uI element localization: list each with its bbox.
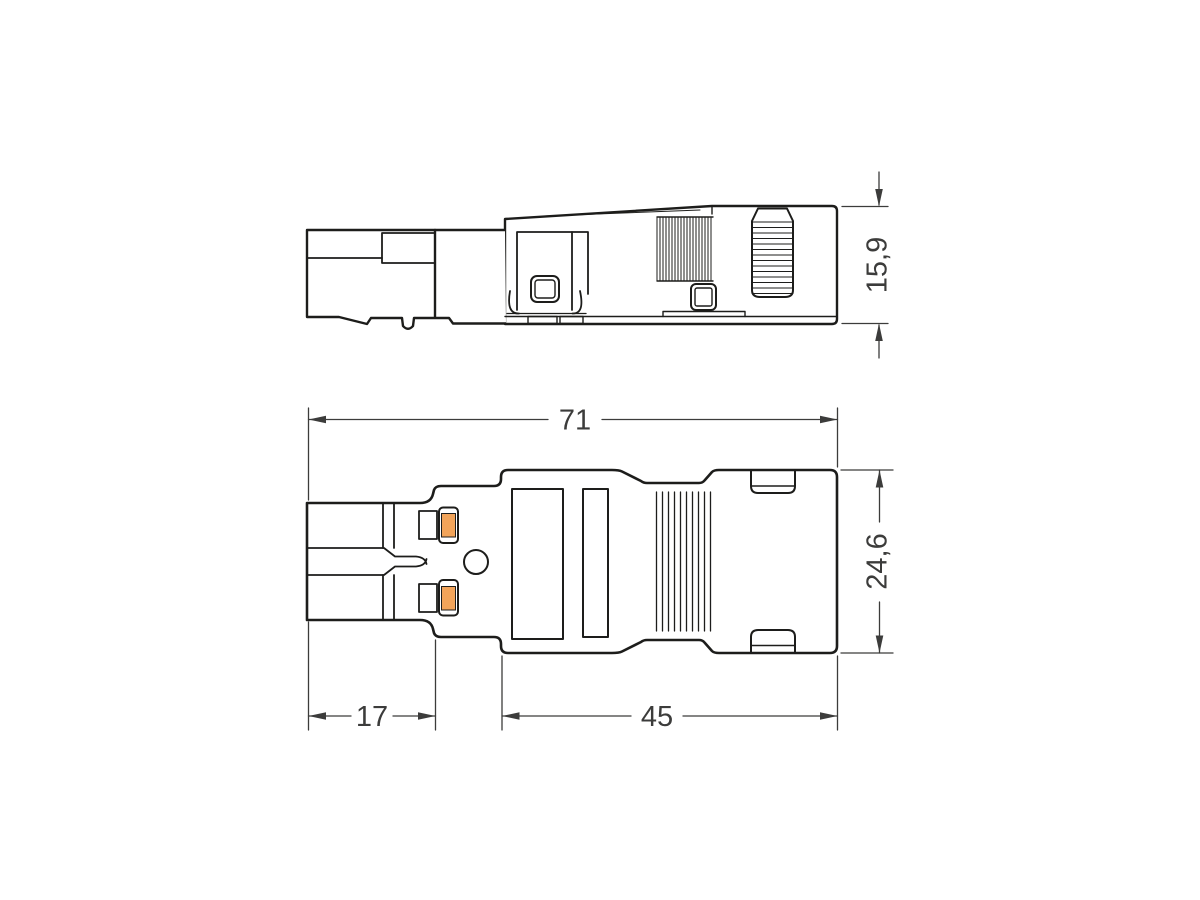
side-view-part bbox=[307, 206, 837, 329]
release-lever-2 bbox=[439, 580, 458, 616]
dim-height-label: 15,9 bbox=[862, 237, 894, 293]
technical-drawing: 15,9 bbox=[0, 0, 1200, 900]
plan-outline bbox=[307, 470, 837, 653]
dim-height: 15,9 bbox=[842, 172, 894, 358]
plan-view: 71 24,6 17 45 bbox=[307, 405, 894, 734]
dim-body-length-label: 45 bbox=[641, 701, 673, 733]
dim-overall-length-label: 71 bbox=[559, 405, 591, 437]
plan-view-part bbox=[307, 470, 837, 653]
housing-body-outline bbox=[505, 206, 837, 324]
test-port-circle bbox=[464, 550, 488, 574]
dim-width-label: 24,6 bbox=[862, 533, 894, 589]
release-lever-1-orange bbox=[442, 514, 456, 538]
side-view: 15,9 bbox=[307, 172, 894, 358]
plug-front-outline bbox=[307, 230, 506, 329]
release-lever-1 bbox=[439, 508, 458, 544]
dim-front-length-label: 17 bbox=[356, 701, 388, 733]
clamp-housing-1 bbox=[419, 511, 437, 539]
release-lever-2-orange bbox=[442, 587, 456, 611]
clamp-housing-2 bbox=[419, 584, 437, 612]
